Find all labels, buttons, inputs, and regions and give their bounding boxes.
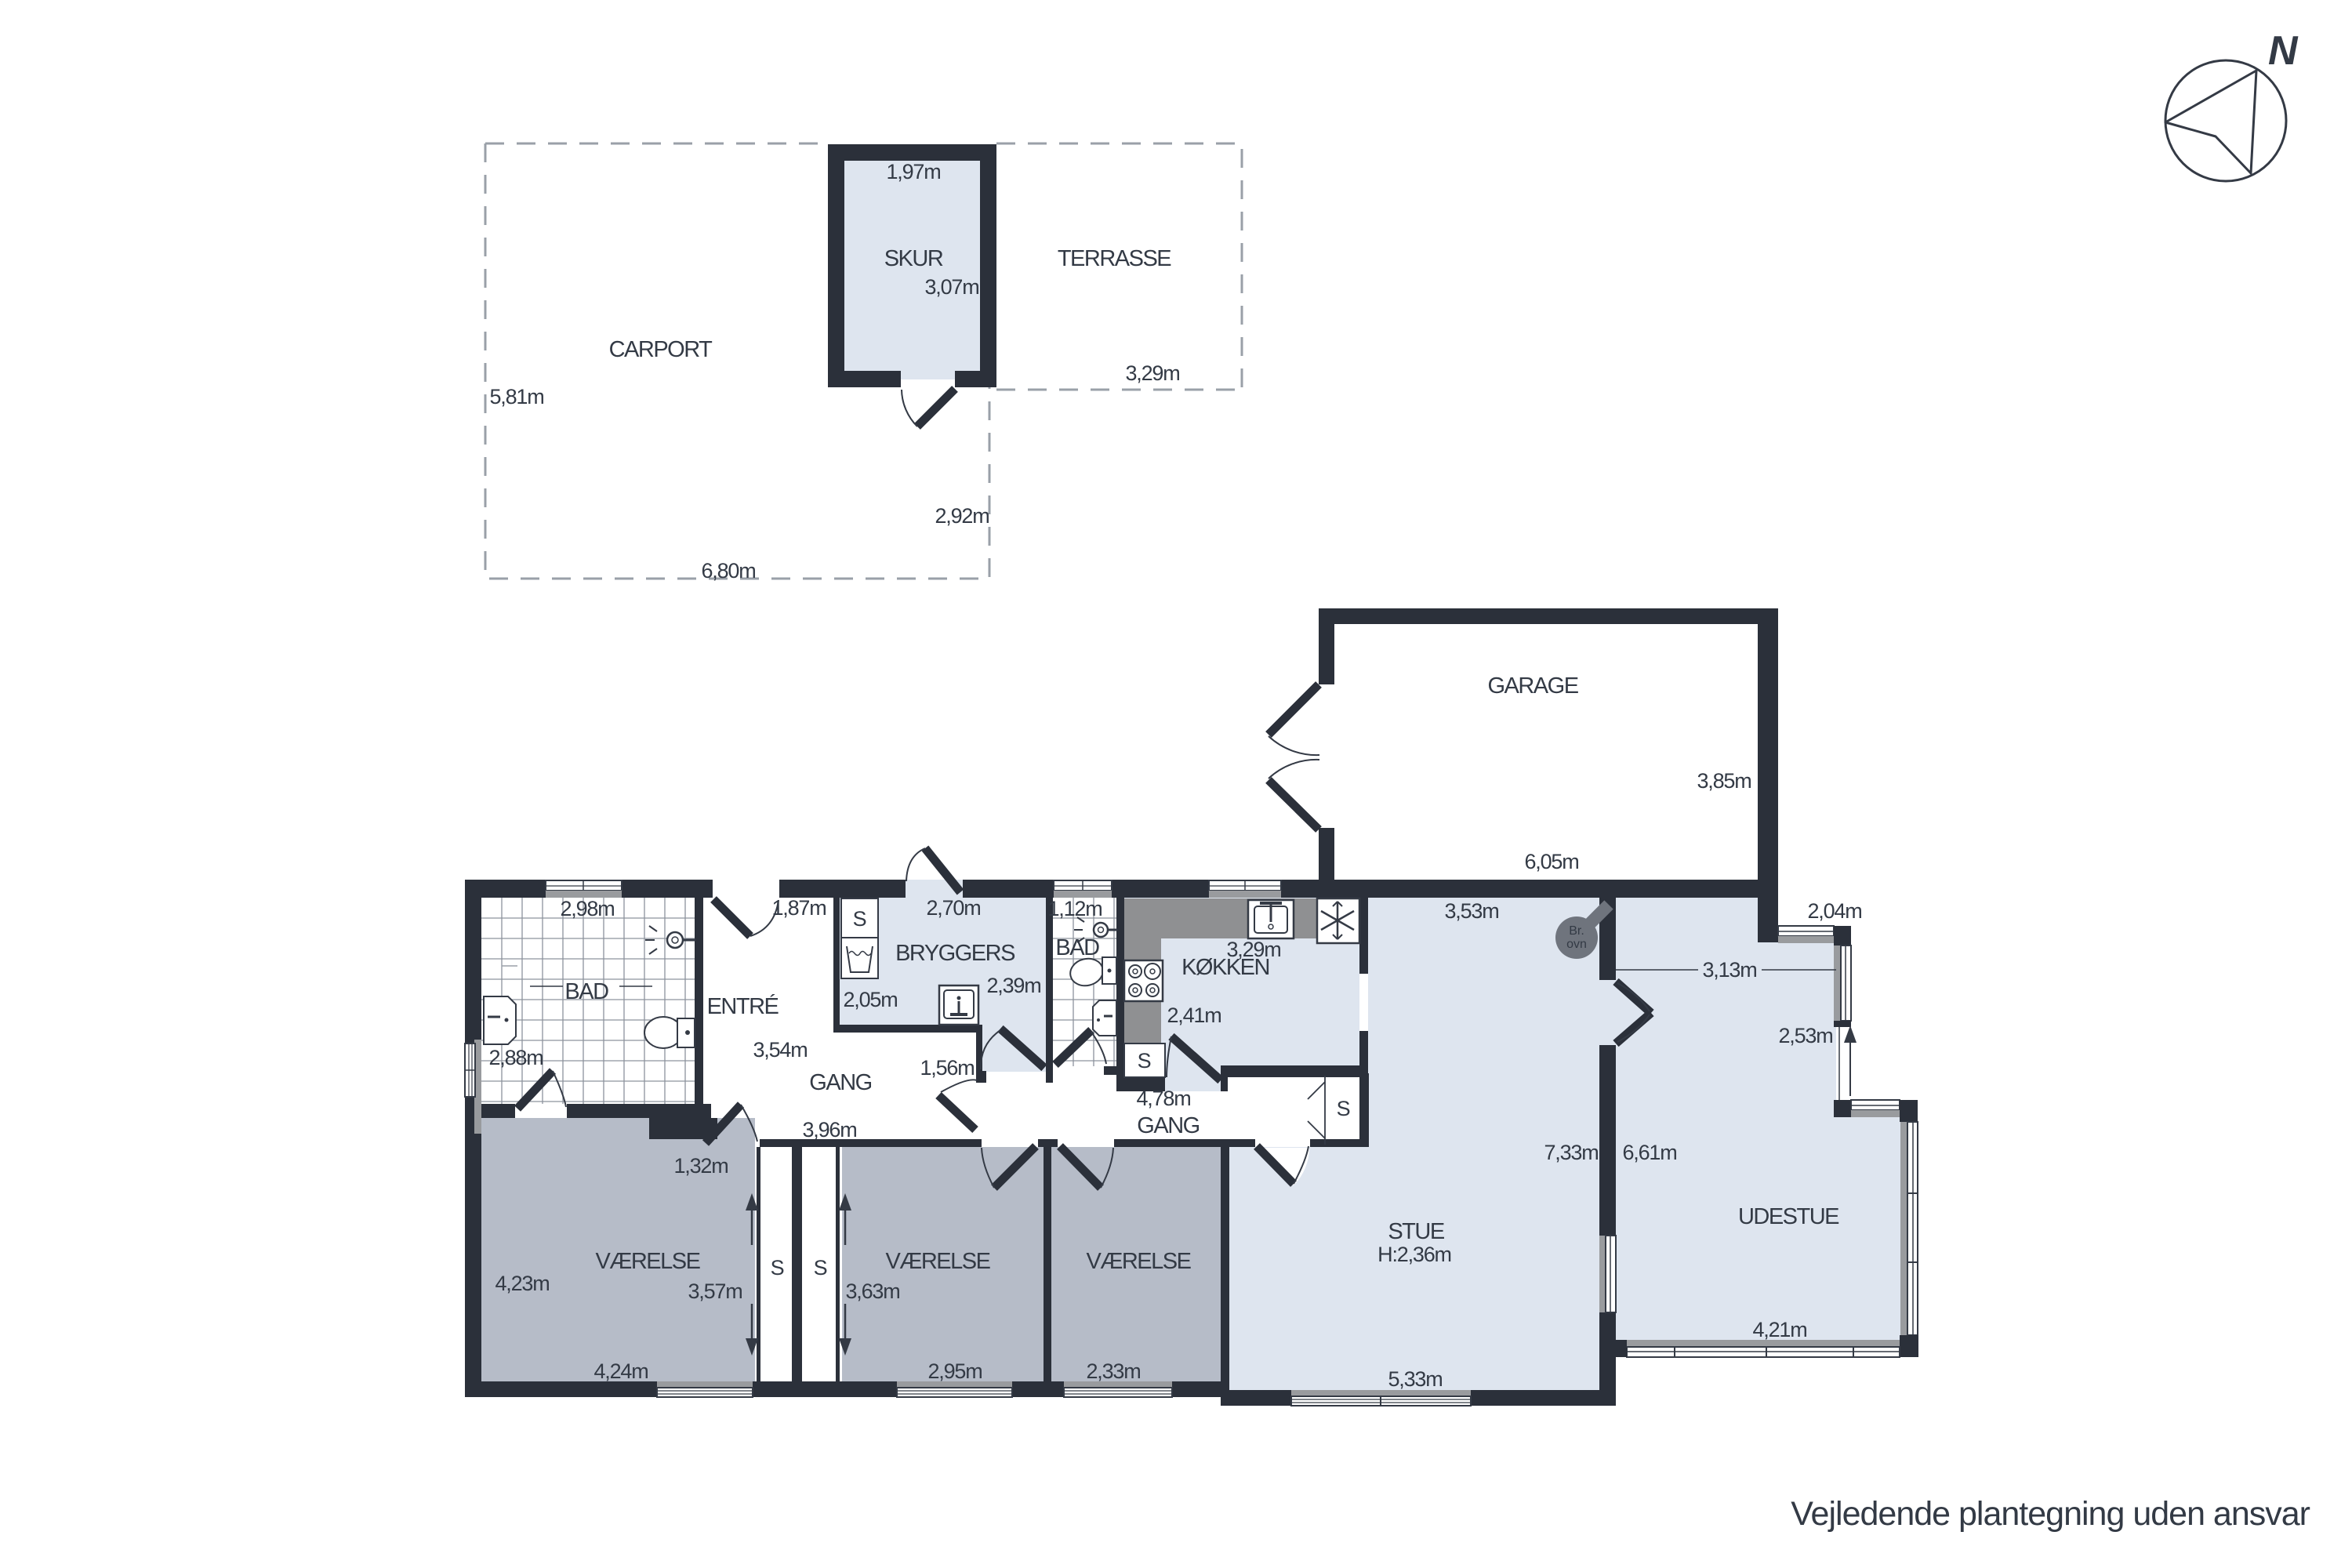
svg-text:GANG: GANG: [809, 1070, 871, 1095]
svg-text:GARAGE: GARAGE: [1487, 673, 1578, 699]
svg-text:BAD: BAD: [564, 979, 608, 1004]
svg-text:3,13m: 3,13m: [1702, 958, 1756, 982]
svg-text:STUE: STUE: [1388, 1219, 1445, 1244]
svg-text:3,53m: 3,53m: [1444, 899, 1498, 923]
svg-text:3,29m: 3,29m: [1125, 361, 1179, 385]
svg-text:CARPORT: CARPORT: [609, 337, 713, 362]
svg-text:S: S: [814, 1256, 827, 1279]
svg-text:3,96m: 3,96m: [802, 1118, 856, 1142]
svg-text:6,61m: 6,61m: [1622, 1141, 1676, 1164]
svg-text:5,33m: 5,33m: [1388, 1367, 1442, 1391]
svg-text:2,41m: 2,41m: [1167, 1004, 1221, 1027]
svg-text:3,63m: 3,63m: [845, 1279, 899, 1303]
svg-text:1,56m: 1,56m: [920, 1056, 974, 1080]
svg-text:VÆRELSE: VÆRELSE: [886, 1249, 991, 1274]
svg-text:2,70m: 2,70m: [926, 896, 980, 920]
svg-text:4,21m: 4,21m: [1752, 1318, 1806, 1341]
svg-text:VÆRELSE: VÆRELSE: [596, 1249, 701, 1274]
svg-text:6,05m: 6,05m: [1524, 850, 1578, 873]
svg-text:N: N: [2268, 28, 2299, 74]
svg-text:2,95m: 2,95m: [927, 1359, 982, 1383]
svg-text:2,98m: 2,98m: [560, 897, 614, 920]
svg-text:S: S: [853, 907, 866, 931]
svg-text:GANG: GANG: [1137, 1113, 1199, 1138]
svg-text:Br.: Br.: [1569, 924, 1584, 938]
svg-text:4,78m: 4,78m: [1136, 1087, 1190, 1110]
svg-text:VÆRELSE: VÆRELSE: [1087, 1249, 1192, 1274]
svg-text:BAD: BAD: [1055, 935, 1099, 960]
svg-text:7,33m: 7,33m: [1544, 1141, 1598, 1164]
svg-text:2,39m: 2,39m: [986, 974, 1040, 997]
svg-text:S: S: [1337, 1097, 1350, 1120]
svg-text:1,12m: 1,12m: [1047, 897, 1102, 920]
svg-text:2,88m: 2,88m: [488, 1046, 543, 1069]
svg-text:S: S: [1138, 1049, 1151, 1073]
svg-text:BRYGGERS: BRYGGERS: [895, 941, 1015, 966]
svg-text:1,87m: 1,87m: [771, 896, 826, 920]
svg-text:4,23m: 4,23m: [495, 1272, 549, 1295]
svg-text:2,33m: 2,33m: [1086, 1359, 1140, 1383]
svg-text:UDESTUE: UDESTUE: [1738, 1204, 1839, 1229]
svg-text:S: S: [771, 1256, 784, 1279]
svg-text:3,54m: 3,54m: [753, 1038, 807, 1062]
svg-text:2,05m: 2,05m: [843, 988, 897, 1011]
svg-text:TERRASSE: TERRASSE: [1058, 246, 1171, 271]
svg-text:4,24m: 4,24m: [593, 1359, 648, 1383]
svg-text:Vejledende plantegning uden an: Vejledende plantegning uden ansvar: [1791, 1495, 2310, 1533]
svg-text:2,92m: 2,92m: [935, 504, 989, 528]
svg-text:3,07m: 3,07m: [924, 275, 978, 299]
svg-text:ENTRÉ: ENTRÉ: [707, 993, 779, 1019]
svg-text:ovn: ovn: [1566, 938, 1587, 951]
svg-text:1,32m: 1,32m: [673, 1154, 728, 1178]
svg-text:2,04m: 2,04m: [1807, 899, 1861, 923]
svg-text:H:2,36m: H:2,36m: [1377, 1243, 1451, 1266]
svg-text:3,29m: 3,29m: [1226, 938, 1280, 961]
svg-text:6,80m: 6,80m: [701, 559, 755, 583]
svg-text:3,85m: 3,85m: [1697, 769, 1751, 793]
svg-text:SKUR: SKUR: [884, 246, 943, 271]
svg-text:1,97m: 1,97m: [886, 160, 940, 183]
svg-text:2,53m: 2,53m: [1778, 1024, 1832, 1047]
svg-text:3,57m: 3,57m: [688, 1279, 742, 1303]
svg-text:5,81m: 5,81m: [489, 385, 543, 408]
